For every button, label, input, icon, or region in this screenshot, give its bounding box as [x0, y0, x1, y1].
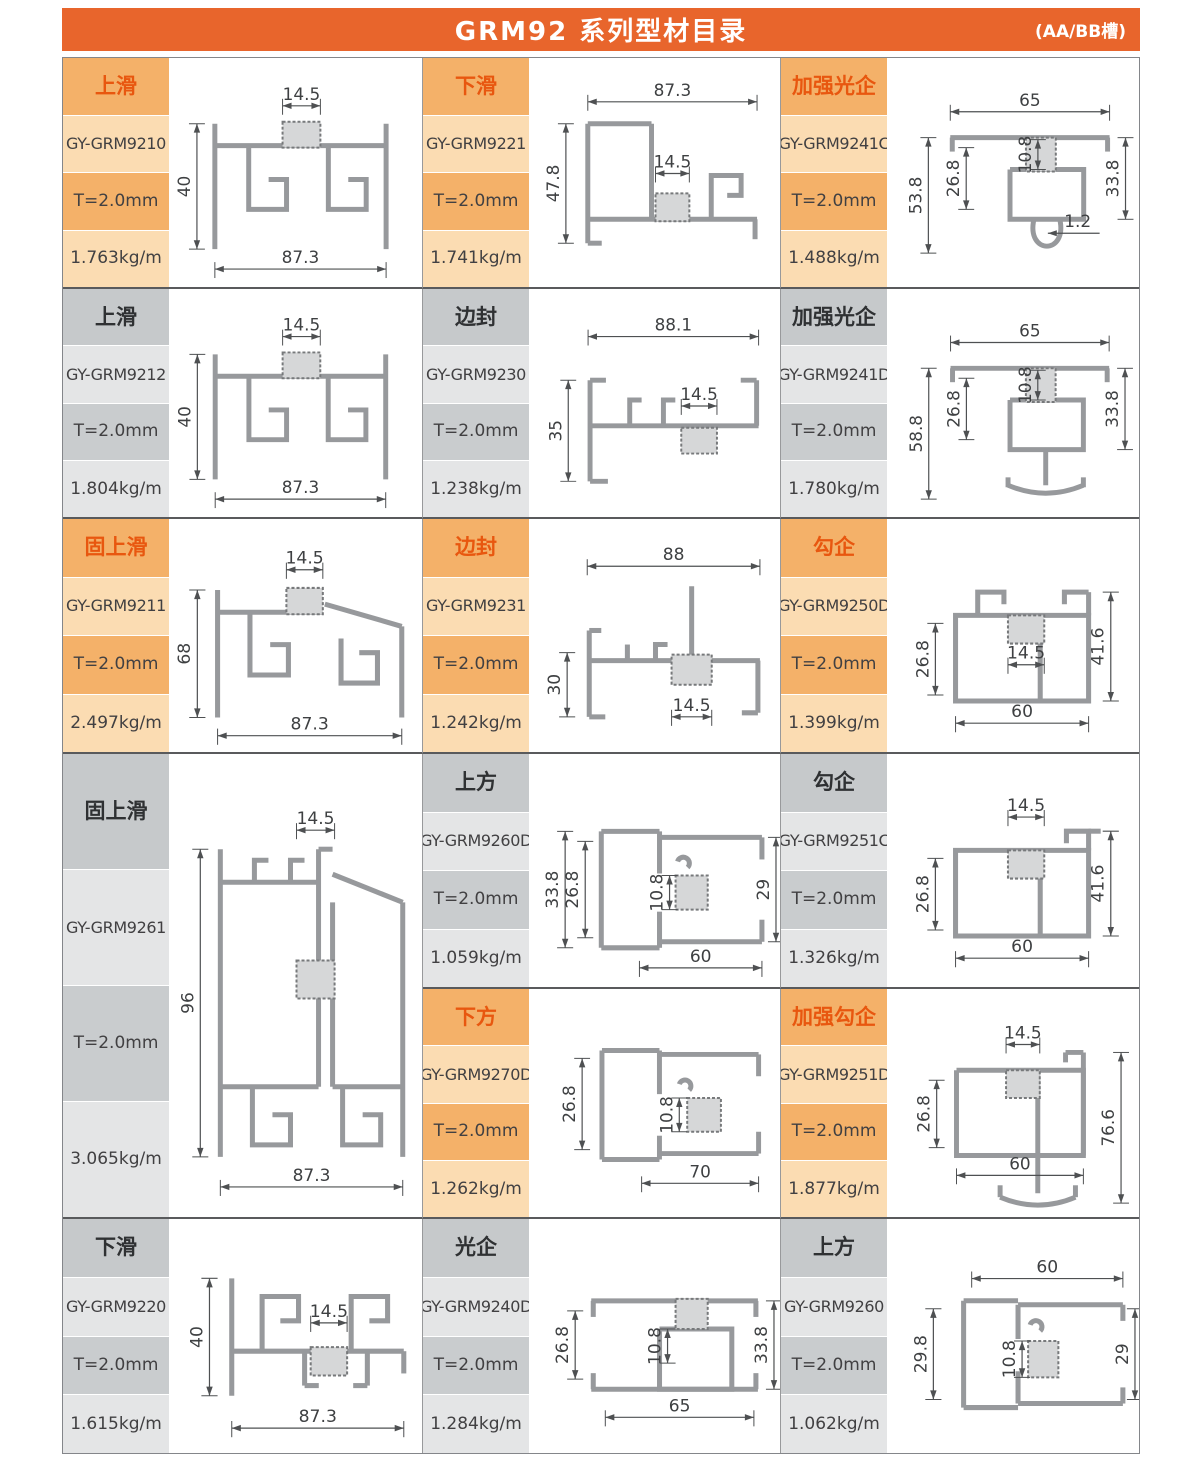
svg-text:96: 96 — [178, 992, 198, 1014]
label-strip: 边封 GY-GRM9230 T=2.0mm 1.238kg/m — [423, 289, 529, 517]
svg-text:29: 29 — [1113, 1343, 1133, 1365]
profile-thickness: T=2.0mm — [63, 404, 169, 461]
profile-weight: 1.059kg/m — [423, 930, 529, 988]
profile-weight: 1.242kg/m — [423, 695, 529, 753]
profile-drawing: 14.54087.3 — [169, 58, 422, 287]
svg-text:88: 88 — [663, 545, 685, 565]
profile-thickness: T=2.0mm — [423, 871, 529, 930]
svg-text:14.5: 14.5 — [310, 1302, 348, 1322]
profile-thickness: T=2.0mm — [63, 636, 169, 695]
label-strip: 固上滑 GY-GRM9261 T=2.0mm 3.065kg/m — [63, 754, 169, 1217]
header-note: (AA/BB槽) — [1035, 8, 1126, 51]
profile-type-label: 固上滑 — [63, 754, 169, 870]
profile-weight: 1.780kg/m — [781, 461, 887, 517]
svg-text:40: 40 — [174, 176, 194, 198]
profile-drawing: 26.810.870 — [529, 989, 780, 1217]
svg-text:60: 60 — [690, 947, 712, 967]
svg-text:26.8: 26.8 — [943, 160, 963, 198]
svg-text:65: 65 — [1019, 321, 1040, 341]
label-strip: 下方 GY-GRM9270D T=2.0mm 1.262kg/m — [423, 989, 529, 1217]
svg-text:60: 60 — [1036, 1257, 1058, 1277]
profile-type-label: 勾企 — [781, 754, 887, 813]
profile-model: GY-GRM9261 — [63, 870, 169, 986]
profile-drawing: 6553.826.810.833.81.2 — [887, 58, 1139, 287]
profile-model: GY-GRM9210 — [63, 116, 169, 174]
profile-model: GY-GRM9270D — [423, 1046, 529, 1103]
profile-type-label: 下滑 — [63, 1219, 169, 1278]
label-strip: 光企 GY-GRM9240D T=2.0mm 1.284kg/m — [423, 1219, 529, 1453]
profile-drawing: 6029.810.829 — [887, 1219, 1139, 1453]
svg-text:87.3: 87.3 — [282, 247, 320, 267]
profile-model: GY-GRM9211 — [63, 578, 169, 637]
svg-text:87.3: 87.3 — [299, 1407, 337, 1427]
svg-text:60: 60 — [1011, 702, 1033, 722]
profile-type-label: 光企 — [423, 1219, 529, 1278]
svg-text:87.3: 87.3 — [293, 1166, 331, 1186]
label-strip: 上滑 GY-GRM9210 T=2.0mm 1.763kg/m — [63, 58, 169, 287]
profile-model: GY-GRM9251D — [781, 1046, 887, 1103]
svg-text:33.8: 33.8 — [752, 1326, 772, 1364]
svg-text:35: 35 — [545, 420, 565, 441]
profile-drawing: 88.13514.5 — [529, 289, 780, 517]
profile-type-label: 边封 — [423, 289, 529, 346]
svg-text:68: 68 — [175, 643, 195, 665]
profile-cell: 边封 GY-GRM9230 T=2.0mm 1.238kg/m 88.13514… — [423, 289, 781, 519]
label-strip: 加强勾企 GY-GRM9251D T=2.0mm 1.877kg/m — [781, 989, 887, 1217]
profile-drawing: 14.59687.3 — [169, 754, 422, 1217]
svg-text:14.5: 14.5 — [1007, 796, 1045, 816]
profile-weight: 1.062kg/m — [781, 1395, 887, 1453]
profile-thickness: T=2.0mm — [423, 173, 529, 231]
profile-model: GY-GRM9251C — [781, 813, 887, 872]
svg-text:14.5: 14.5 — [673, 696, 711, 716]
profile-model: GY-GRM9260 — [781, 1278, 887, 1337]
svg-text:65: 65 — [1019, 90, 1041, 110]
profile-weight: 3.065kg/m — [63, 1102, 169, 1217]
profile-drawing: 87.347.814.5 — [529, 58, 780, 287]
profile-thickness: T=2.0mm — [781, 1337, 887, 1396]
label-strip: 下滑 GY-GRM9220 T=2.0mm 1.615kg/m — [63, 1219, 169, 1453]
svg-text:60: 60 — [1011, 937, 1033, 957]
profile-drawing: 14.54087.3 — [169, 289, 422, 517]
profile-weight: 1.741kg/m — [423, 231, 529, 288]
profile-cell: 勾企 GY-GRM9250D T=2.0mm 1.399kg/m 26.814.… — [781, 519, 1139, 754]
profile-cell: 固上滑 GY-GRM9261 T=2.0mm 3.065kg/m 14.5968… — [63, 754, 423, 1219]
profile-type-label: 上滑 — [63, 58, 169, 116]
profile-drawing: 14.526.876.660 — [887, 989, 1139, 1217]
svg-text:29: 29 — [754, 879, 774, 901]
profile-thickness: T=2.0mm — [423, 1337, 529, 1396]
svg-text:10.8: 10.8 — [656, 1096, 676, 1134]
label-strip: 加强光企 GY-GRM9241C T=2.0mm 1.488kg/m — [781, 58, 887, 287]
svg-text:88.1: 88.1 — [655, 315, 693, 335]
svg-text:47.8: 47.8 — [543, 165, 563, 203]
profile-type-label: 上方 — [423, 754, 529, 813]
profile-cell: 下滑 GY-GRM9220 T=2.0mm 1.615kg/m 4014.587… — [63, 1219, 423, 1453]
svg-text:65: 65 — [669, 1396, 691, 1416]
svg-text:14.5: 14.5 — [680, 384, 718, 404]
profile-cell: 加强光企 GY-GRM9241D T=2.0mm 1.780kg/m 6558.… — [781, 289, 1139, 519]
svg-text:40: 40 — [174, 406, 194, 427]
svg-text:26.8: 26.8 — [913, 640, 933, 678]
profile-model: GY-GRM9250D — [781, 578, 887, 637]
svg-text:33.8: 33.8 — [1103, 160, 1123, 198]
profile-model: GY-GRM9221 — [423, 116, 529, 174]
svg-text:10.8: 10.8 — [1000, 1340, 1020, 1378]
profile-weight: 1.284kg/m — [423, 1395, 529, 1453]
profile-model: GY-GRM9212 — [63, 346, 169, 403]
svg-text:30: 30 — [545, 674, 565, 696]
profile-drawing: 14.56887.3 — [169, 519, 422, 752]
svg-text:10.8: 10.8 — [648, 874, 668, 912]
svg-text:26.8: 26.8 — [563, 871, 583, 909]
profile-weight: 1.238kg/m — [423, 461, 529, 517]
profile-thickness: T=2.0mm — [423, 1104, 529, 1161]
profile-weight: 2.497kg/m — [63, 695, 169, 753]
svg-text:41.6: 41.6 — [1089, 628, 1109, 666]
label-strip: 上方 GY-GRM9260D T=2.0mm 1.059kg/m — [423, 754, 529, 987]
profile-model: GY-GRM9220 — [63, 1278, 169, 1337]
profile-cell: 上方 GY-GRM9260D T=2.0mm 1.059kg/m 33.826.… — [423, 754, 781, 989]
profile-type-label: 加强光企 — [781, 289, 887, 346]
label-strip: 固上滑 GY-GRM9211 T=2.0mm 2.497kg/m — [63, 519, 169, 752]
profile-type-label: 固上滑 — [63, 519, 169, 578]
profile-drawing: 4014.587.3 — [169, 1219, 422, 1453]
profile-model: GY-GRM9260D — [423, 813, 529, 872]
profile-grid: 上滑 GY-GRM9210 T=2.0mm 1.763kg/m 14.54087… — [62, 57, 1140, 1454]
profile-thickness: T=2.0mm — [781, 404, 887, 461]
profile-weight: 1.763kg/m — [63, 231, 169, 288]
profile-cell: 上方 GY-GRM9260 T=2.0mm 1.062kg/m 6029.810… — [781, 1219, 1139, 1453]
profile-thickness: T=2.0mm — [781, 871, 887, 930]
profile-drawing: 26.814.541.660 — [887, 519, 1139, 752]
profile-type-label: 上方 — [781, 1219, 887, 1278]
svg-text:10.8: 10.8 — [646, 1327, 666, 1365]
label-strip: 上方 GY-GRM9260 T=2.0mm 1.062kg/m — [781, 1219, 887, 1453]
catalog-header: GRM92 系列型材目录 (AA/BB槽) — [62, 8, 1140, 51]
svg-text:14.5: 14.5 — [283, 315, 321, 335]
profile-type-label: 加强光企 — [781, 58, 887, 116]
profile-weight: 1.488kg/m — [781, 231, 887, 288]
svg-text:33.8: 33.8 — [1102, 390, 1122, 428]
profile-cell: 固上滑 GY-GRM9211 T=2.0mm 2.497kg/m 14.5688… — [63, 519, 423, 754]
profile-drawing: 6558.826.810.833.8 — [887, 289, 1139, 517]
profile-weight: 1.877kg/m — [781, 1161, 887, 1217]
svg-text:14.5: 14.5 — [285, 549, 323, 569]
profile-weight: 1.804kg/m — [63, 461, 169, 517]
label-strip: 上滑 GY-GRM9212 T=2.0mm 1.804kg/m — [63, 289, 169, 517]
profile-type-label: 边封 — [423, 519, 529, 578]
svg-text:33.8: 33.8 — [543, 871, 563, 909]
profile-drawing: 26.810.833.865 — [529, 1219, 780, 1453]
profile-model: GY-GRM9240D — [423, 1278, 529, 1337]
catalog-page: GRM92 系列型材目录 (AA/BB槽) 上滑 GY-GRM9210 T=2.… — [62, 8, 1140, 1454]
profile-model: GY-GRM9241C — [781, 116, 887, 174]
profile-thickness: T=2.0mm — [63, 173, 169, 231]
page-title: GRM92 系列型材目录 — [455, 11, 747, 48]
profile-thickness: T=2.0mm — [781, 173, 887, 231]
profile-cell: 勾企 GY-GRM9251C T=2.0mm 1.326kg/m 14.526.… — [781, 754, 1139, 989]
svg-text:29.8: 29.8 — [911, 1335, 931, 1373]
svg-text:26.8: 26.8 — [913, 875, 933, 913]
profile-type-label: 下方 — [423, 989, 529, 1046]
profile-drawing: 14.526.841.660 — [887, 754, 1139, 987]
svg-text:53.8: 53.8 — [905, 177, 925, 215]
profile-cell: 下方 GY-GRM9270D T=2.0mm 1.262kg/m 26.810.… — [423, 989, 781, 1219]
profile-cell: 上滑 GY-GRM9210 T=2.0mm 1.763kg/m 14.54087… — [63, 58, 423, 289]
profile-thickness: T=2.0mm — [63, 1337, 169, 1396]
label-strip: 勾企 GY-GRM9251C T=2.0mm 1.326kg/m — [781, 754, 887, 987]
profile-cell: 光企 GY-GRM9240D T=2.0mm 1.284kg/m 26.810.… — [423, 1219, 781, 1453]
svg-text:14.5: 14.5 — [283, 84, 321, 104]
svg-text:1.2: 1.2 — [1064, 211, 1091, 231]
profile-thickness: T=2.0mm — [423, 404, 529, 461]
profile-weight: 1.399kg/m — [781, 695, 887, 753]
profile-model: GY-GRM9230 — [423, 346, 529, 403]
svg-text:87.3: 87.3 — [282, 477, 320, 497]
svg-text:14.5: 14.5 — [1004, 1023, 1042, 1043]
profile-thickness: T=2.0mm — [423, 636, 529, 695]
svg-text:26.8: 26.8 — [943, 390, 963, 428]
svg-text:40: 40 — [187, 1326, 207, 1348]
profile-model: GY-GRM9231 — [423, 578, 529, 637]
profile-type-label: 下滑 — [423, 58, 529, 116]
svg-text:87.3: 87.3 — [291, 715, 329, 735]
svg-text:58.8: 58.8 — [906, 415, 926, 453]
svg-text:70: 70 — [689, 1161, 710, 1181]
profile-thickness: T=2.0mm — [781, 1104, 887, 1161]
svg-text:87.3: 87.3 — [654, 80, 692, 100]
svg-text:14.5: 14.5 — [654, 152, 692, 172]
profile-cell: 加强勾企 GY-GRM9251D T=2.0mm 1.877kg/m 14.52… — [781, 989, 1139, 1219]
label-strip: 边封 GY-GRM9231 T=2.0mm 1.242kg/m — [423, 519, 529, 752]
label-strip: 勾企 GY-GRM9250D T=2.0mm 1.399kg/m — [781, 519, 887, 752]
profile-drawing: 33.826.810.82960 — [529, 754, 780, 987]
profile-model: GY-GRM9241D — [781, 346, 887, 403]
svg-text:41.6: 41.6 — [1089, 865, 1109, 903]
profile-weight: 1.326kg/m — [781, 930, 887, 988]
profile-type-label: 上滑 — [63, 289, 169, 346]
svg-text:26.8: 26.8 — [914, 1095, 934, 1133]
svg-text:14.5: 14.5 — [1007, 644, 1045, 664]
profile-type-label: 加强勾企 — [781, 989, 887, 1046]
profile-cell: 加强光企 GY-GRM9241C T=2.0mm 1.488kg/m 6553.… — [781, 58, 1139, 289]
profile-cell: 边封 GY-GRM9231 T=2.0mm 1.242kg/m 883014.5 — [423, 519, 781, 754]
profile-type-label: 勾企 — [781, 519, 887, 578]
svg-text:26.8: 26.8 — [559, 1085, 579, 1123]
svg-text:76.6: 76.6 — [1098, 1109, 1118, 1147]
label-strip: 加强光企 GY-GRM9241D T=2.0mm 1.780kg/m — [781, 289, 887, 517]
profile-thickness: T=2.0mm — [781, 636, 887, 695]
svg-text:60: 60 — [1009, 1153, 1030, 1173]
svg-text:10.8: 10.8 — [1015, 136, 1035, 174]
svg-text:10.8: 10.8 — [1015, 366, 1035, 404]
label-strip: 下滑 GY-GRM9221 T=2.0mm 1.741kg/m — [423, 58, 529, 287]
profile-weight: 1.262kg/m — [423, 1161, 529, 1217]
svg-text:26.8: 26.8 — [553, 1326, 573, 1364]
svg-text:14.5: 14.5 — [297, 809, 335, 829]
profile-cell: 上滑 GY-GRM9212 T=2.0mm 1.804kg/m 14.54087… — [63, 289, 423, 519]
profile-cell: 下滑 GY-GRM9221 T=2.0mm 1.741kg/m 87.347.8… — [423, 58, 781, 289]
profile-thickness: T=2.0mm — [63, 986, 169, 1102]
profile-weight: 1.615kg/m — [63, 1395, 169, 1453]
profile-drawing: 883014.5 — [529, 519, 780, 752]
